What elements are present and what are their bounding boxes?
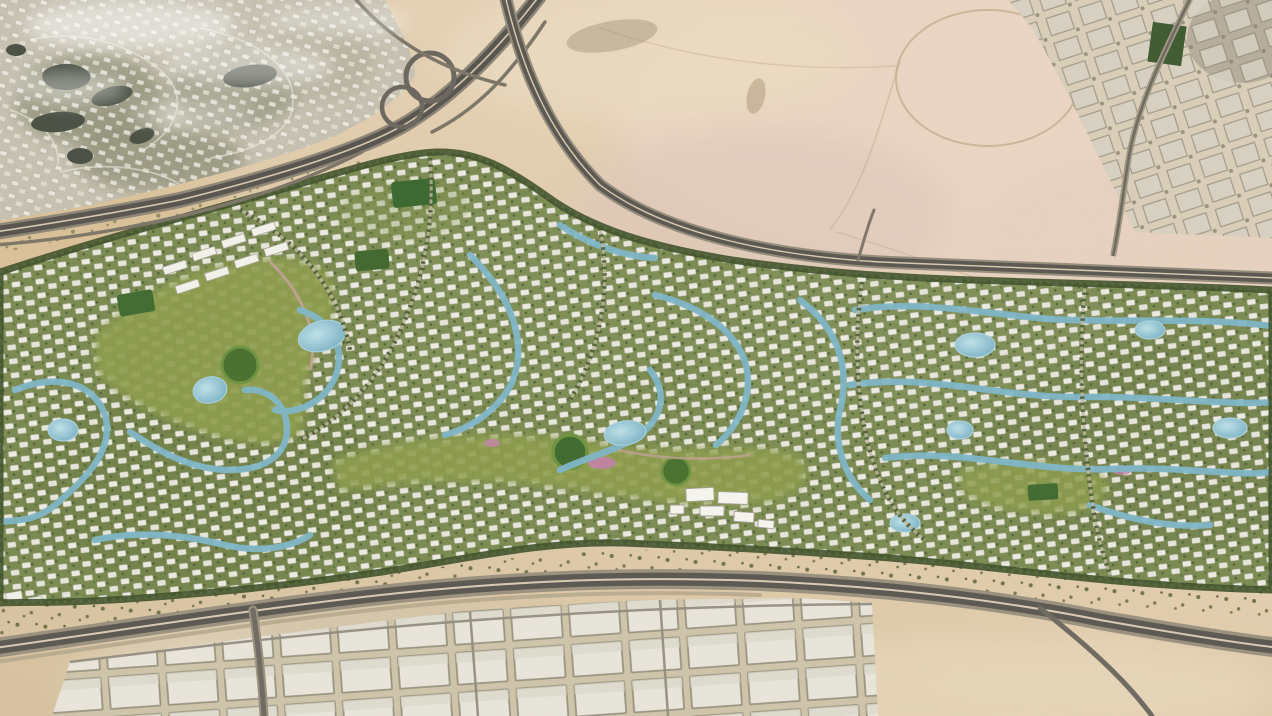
satellite-grain-overlay	[0, 0, 1272, 716]
aerial-masterplan-screenshot	[0, 0, 1272, 716]
aerial-map-canvas	[0, 0, 1272, 716]
